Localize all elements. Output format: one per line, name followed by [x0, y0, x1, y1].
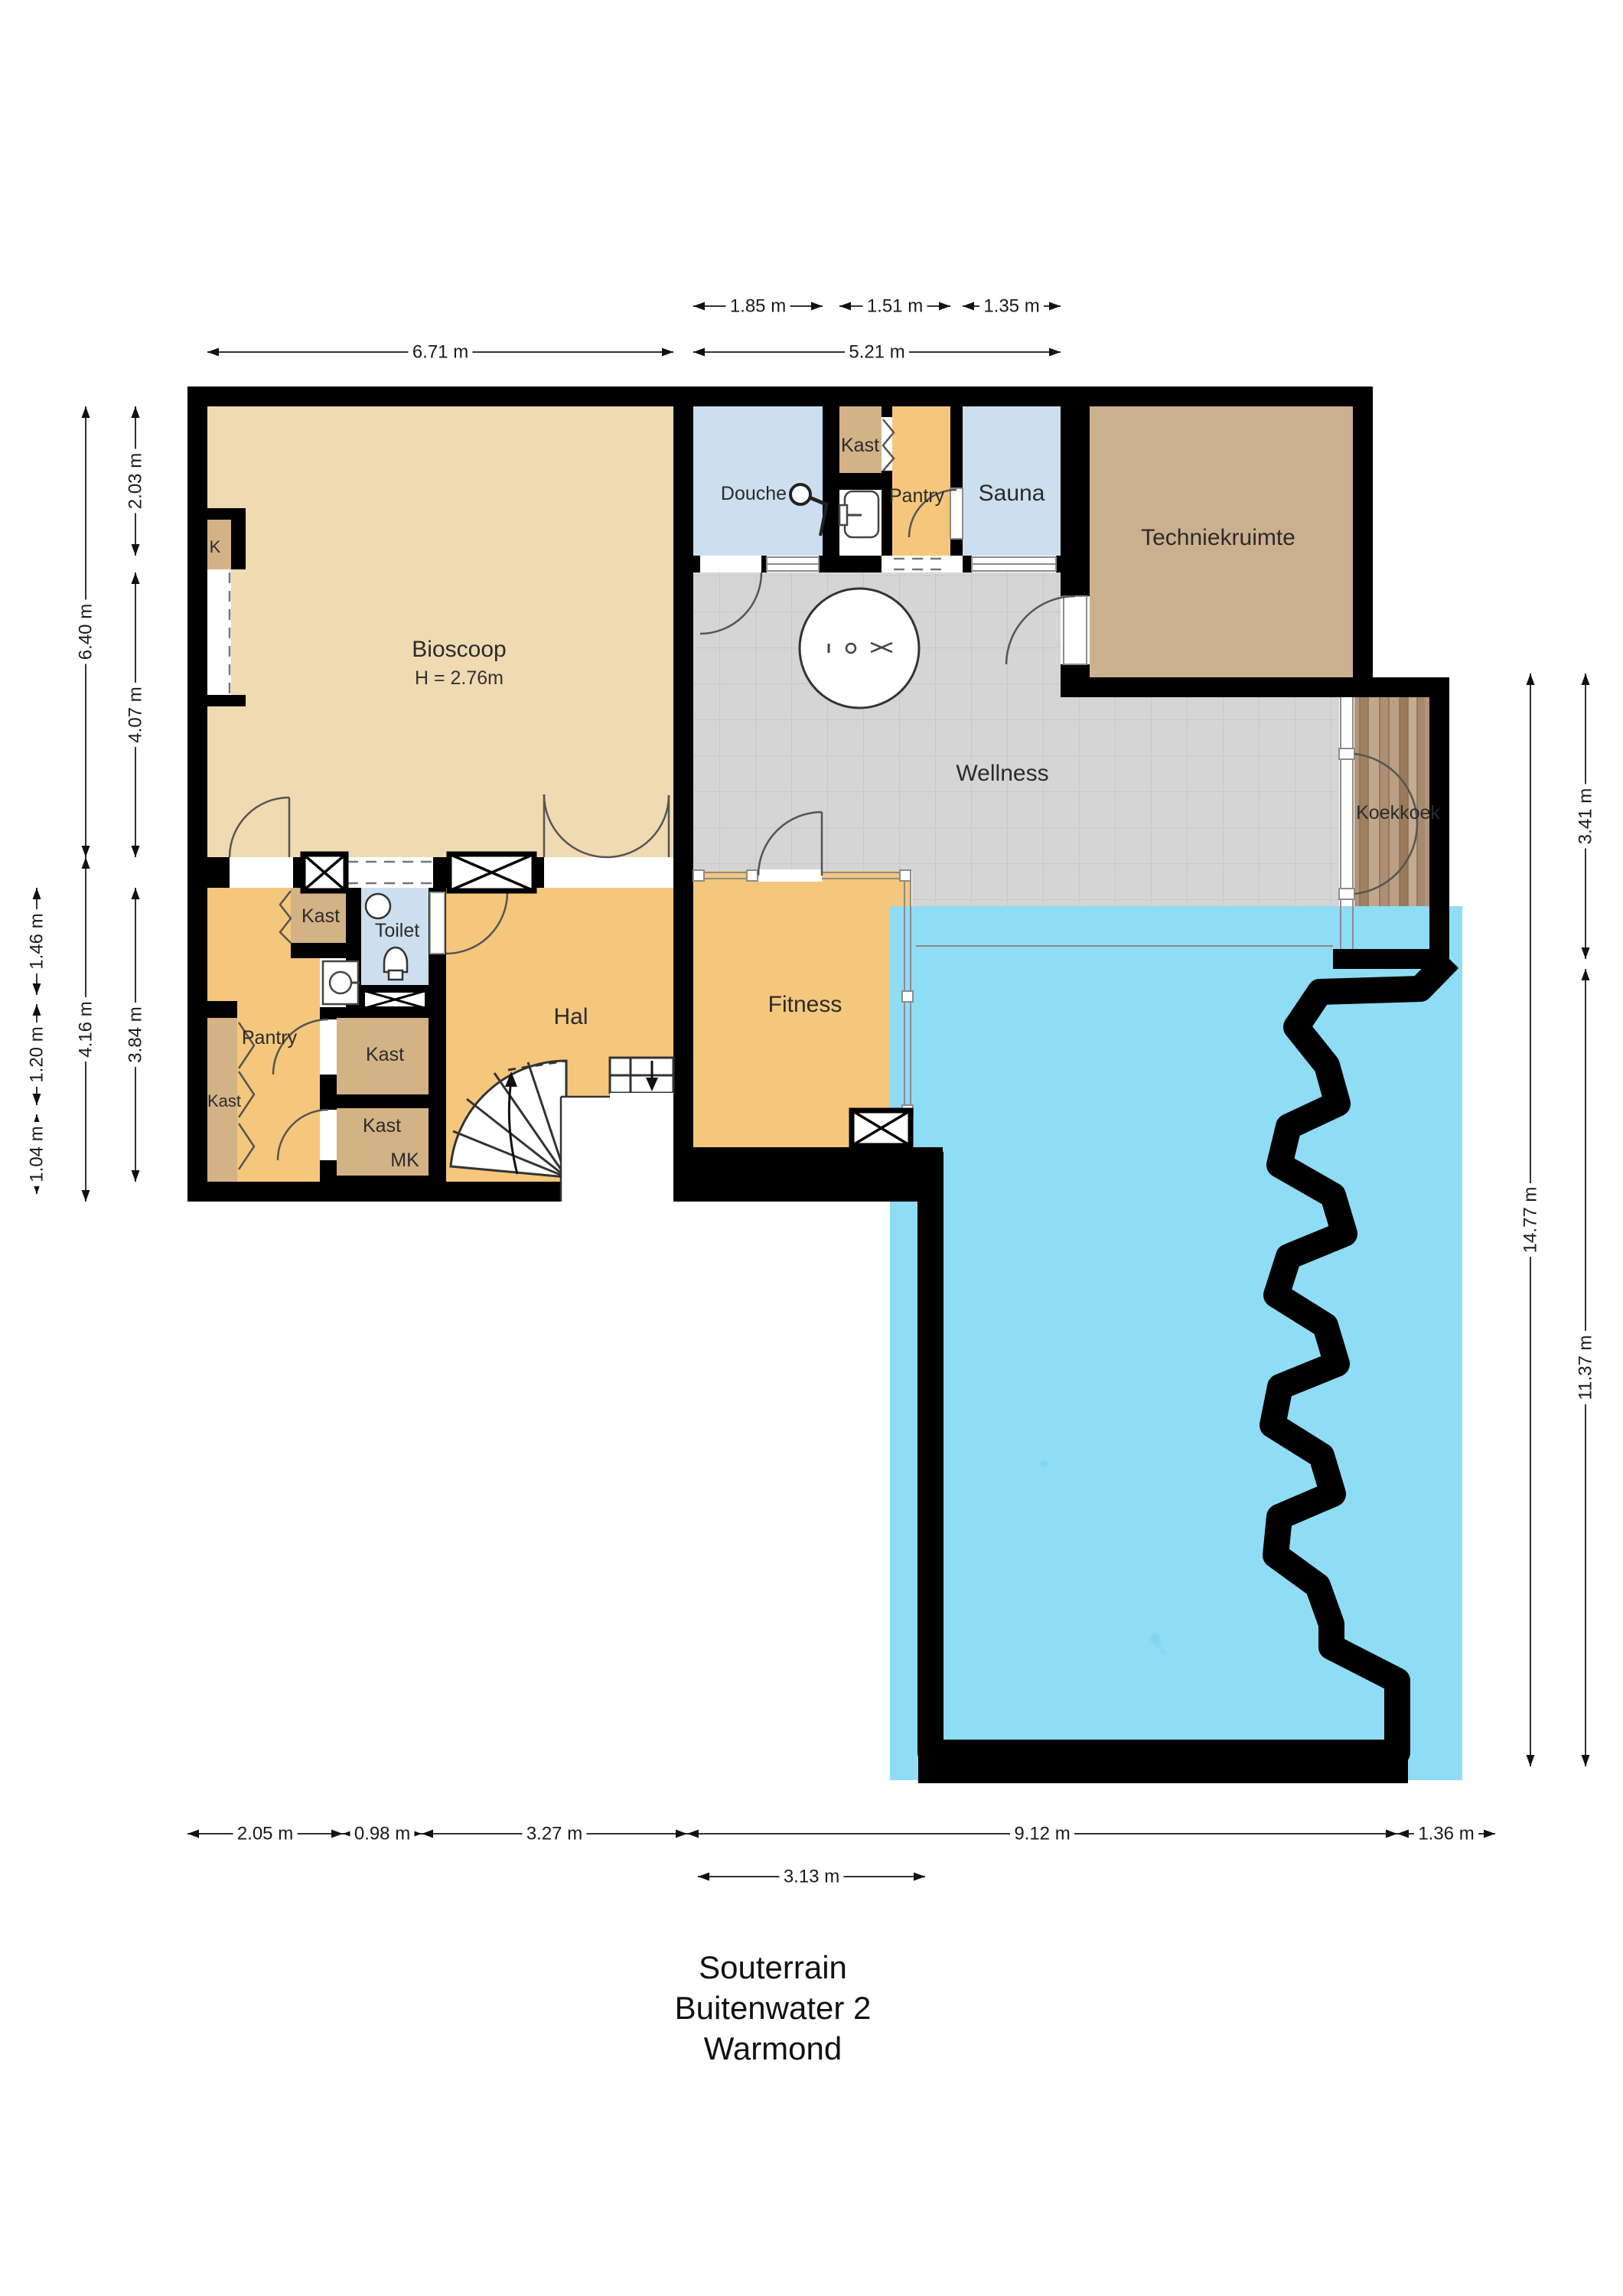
- svg-text:1.35 m: 1.35 m: [983, 296, 1039, 317]
- dim-bottom-0-98: 0.98 m: [343, 1822, 422, 1845]
- stairs-straight: [610, 1058, 673, 1093]
- svg-text:2.03 m: 2.03 m: [125, 453, 146, 509]
- dim-left-4-07: 4.07 m: [124, 572, 147, 857]
- floorplan-drawing: Bioscoop H = 2.76m K Douche Kast Pantry …: [0, 0, 1623, 2296]
- dim-left-1-46: 1.46 m: [25, 888, 48, 995]
- shaft-band-1: [303, 854, 346, 891]
- opening-pantry-upper: [892, 556, 950, 572]
- dim-bottom-3-27: 3.27 m: [422, 1822, 687, 1845]
- window-sauna: [972, 557, 1056, 571]
- svg-text:14.77 m: 14.77 m: [1520, 1187, 1541, 1254]
- title-city: Warmond: [704, 2030, 842, 2066]
- label-kast-lower: Kast: [363, 1115, 401, 1137]
- svg-text:3.41 m: 3.41 m: [1576, 788, 1596, 844]
- svg-text:2.05 m: 2.05 m: [237, 1824, 293, 1844]
- svg-text:4.07 m: 4.07 m: [125, 687, 146, 742]
- svg-text:4.16 m: 4.16 m: [76, 1001, 96, 1057]
- round-shower: [800, 589, 919, 708]
- room-bioscoop: [207, 406, 673, 857]
- label-kast-mid: Kast: [366, 1044, 404, 1065]
- room-wellness-b: [912, 871, 1061, 946]
- label-fitness: Fitness: [768, 992, 842, 1017]
- svg-text:5.21 m: 5.21 m: [849, 342, 904, 363]
- dim-right-14-77: 14.77 m: [1519, 673, 1542, 1766]
- dim-bottom-3-13: 3.13 m: [698, 1865, 925, 1888]
- dim-bottom-9-12: 9.12 m: [687, 1822, 1397, 1845]
- dim-top-6-71: 6.71 m: [207, 341, 673, 364]
- title-floor: Souterrain: [699, 1949, 847, 1985]
- label-koekkoek: Koekkoek: [1356, 802, 1440, 823]
- label-sauna: Sauna: [979, 481, 1045, 506]
- svg-text:3.13 m: 3.13 m: [784, 1867, 839, 1887]
- label-pantry-upper: Pantry: [889, 485, 945, 507]
- dim-left-2-03: 2.03 m: [124, 406, 147, 556]
- dim-bottom-1-36: 1.36 m: [1397, 1822, 1495, 1845]
- label-toilet: Toilet: [375, 920, 419, 941]
- shaft-toilet: [363, 990, 427, 1009]
- washbasin: [839, 491, 878, 537]
- room-douche: [693, 406, 823, 556]
- label-kast-top: Kast: [301, 905, 340, 927]
- svg-text:1.51 m: 1.51 m: [867, 296, 923, 317]
- dim-bottom-2-05: 2.05 m: [187, 1822, 343, 1845]
- label-k: K: [210, 537, 221, 556]
- dim-left-1-20: 1.20 m: [25, 1004, 48, 1105]
- dim-right-3-41: 3.41 m: [1574, 673, 1597, 959]
- label-mk: MK: [390, 1150, 419, 1171]
- label-douche: Douche: [721, 483, 787, 504]
- pool: [916, 946, 1436, 1740]
- svg-text:11.37 m: 11.37 m: [1576, 1336, 1596, 1401]
- svg-text:1.46 m: 1.46 m: [27, 913, 47, 969]
- label-wellness: Wellness: [956, 761, 1048, 786]
- label-techniekruimte: Techniekruimte: [1141, 525, 1295, 550]
- dim-top-1-51: 1.51 m: [839, 295, 950, 318]
- stair-void: [561, 1093, 673, 1202]
- svg-text:9.12 m: 9.12 m: [1014, 1824, 1070, 1844]
- dim-right-11-37: 11.37 m: [1574, 969, 1597, 1766]
- title-block: Souterrain Buitenwater 2 Warmond: [675, 1949, 872, 2066]
- svg-text:0.98 m: 0.98 m: [354, 1824, 410, 1844]
- label-hal: Hal: [553, 1004, 588, 1029]
- svg-text:1.20 m: 1.20 m: [27, 1026, 47, 1082]
- svg-text:3.27 m: 3.27 m: [526, 1824, 582, 1844]
- dim-left-6-40: 6.40 m: [74, 406, 97, 857]
- dim-left-1-04: 1.04 m: [25, 1114, 48, 1194]
- door-accordion-kast-upper: [883, 419, 894, 471]
- label-pantry-lower: Pantry: [242, 1027, 298, 1049]
- shaft-fitness: [852, 1110, 911, 1146]
- svg-text:1.04 m: 1.04 m: [27, 1126, 47, 1182]
- label-bioscoop-height: H = 2.76m: [415, 667, 504, 689]
- svg-text:1.36 m: 1.36 m: [1418, 1824, 1474, 1844]
- window-douche: [767, 557, 819, 571]
- title-address: Buitenwater 2: [675, 1990, 872, 2026]
- dim-left-3-84: 3.84 m: [124, 888, 147, 1182]
- floorplan-page: Bioscoop H = 2.76m K Douche Kast Pantry …: [0, 0, 1623, 2296]
- dim-top-5-21: 5.21 m: [693, 341, 1061, 364]
- dim-top-1-35: 1.35 m: [963, 295, 1061, 318]
- dim-top-1-85: 1.85 m: [693, 295, 823, 318]
- sink-unit: [323, 961, 360, 1004]
- label-kast-upper: Kast: [841, 435, 879, 456]
- dim-left-4-16: 4.16 m: [74, 857, 97, 1202]
- shaft-band-2: [449, 854, 534, 891]
- label-kast-left: Kast: [207, 1091, 241, 1110]
- svg-text:6.40 m: 6.40 m: [76, 604, 96, 660]
- svg-text:6.71 m: 6.71 m: [412, 342, 468, 363]
- pool-water: [916, 946, 1436, 1740]
- svg-text:1.85 m: 1.85 m: [730, 296, 786, 317]
- room-pantry-upper: [892, 406, 950, 556]
- svg-text:3.84 m: 3.84 m: [125, 1006, 146, 1062]
- opening-band-dashed: [346, 857, 433, 888]
- room-wellness-c: [1061, 697, 1339, 946]
- label-bioscoop: Bioscoop: [412, 637, 506, 662]
